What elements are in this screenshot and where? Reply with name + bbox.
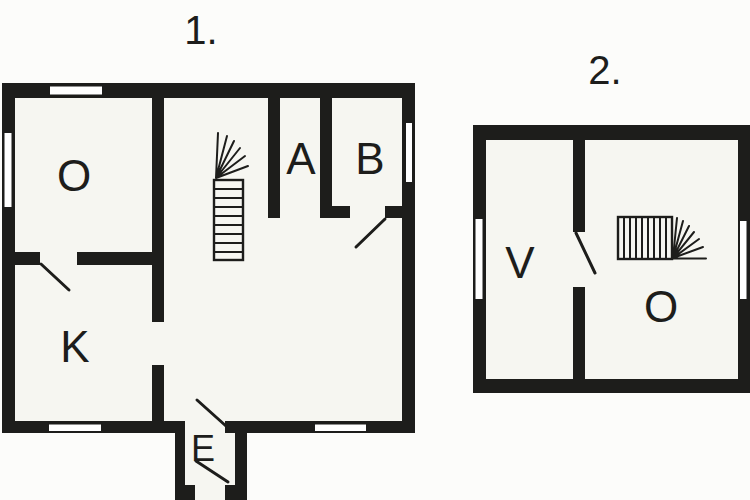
wall-segment-hall-upper	[152, 98, 164, 322]
floor-plan-figure: 1.	[0, 0, 750, 500]
plan-2: 2. V O	[473, 48, 750, 393]
room-label-a: A	[286, 134, 316, 183]
room-label-o1: O	[57, 151, 91, 200]
stair-run	[214, 180, 243, 260]
plan1-floor	[15, 98, 402, 421]
window-left-plan2	[475, 218, 484, 300]
vestibule-bottom-wall-left	[175, 485, 195, 500]
floor-plan-canvas: 1.	[0, 0, 750, 500]
plan-1: 1.	[2, 8, 415, 500]
window-bottom-living	[314, 424, 367, 433]
plan-2-title: 2.	[588, 48, 621, 92]
room-label-o2: O	[644, 282, 678, 331]
window-right-plan2	[739, 220, 748, 300]
room-label-e: E	[191, 428, 215, 469]
room-label-v: V	[505, 238, 535, 287]
wall-segment-a-left	[268, 98, 280, 218]
wall-segment-b-bottom-left	[320, 206, 350, 218]
wall-segment-ab	[320, 98, 332, 206]
room-label-b: B	[355, 134, 384, 183]
window-bottom-k	[48, 424, 102, 433]
room-label-k: K	[60, 322, 89, 371]
wall-segment-vo-lower	[573, 287, 585, 379]
window-right	[405, 122, 413, 183]
wall-segment-ok-right	[77, 252, 152, 265]
window-left	[4, 132, 13, 208]
wall-segment-ok-left	[15, 252, 40, 265]
vestibule-bottom-wall-right	[225, 485, 247, 500]
stair-run-plan2	[618, 217, 672, 259]
wall-segment-hall-lower	[152, 365, 164, 421]
wall-segment-vo-upper	[573, 140, 585, 232]
window-top	[49, 86, 103, 96]
wall-segment-b-bottom-right	[385, 206, 402, 218]
plan-1-title: 1.	[184, 8, 217, 52]
